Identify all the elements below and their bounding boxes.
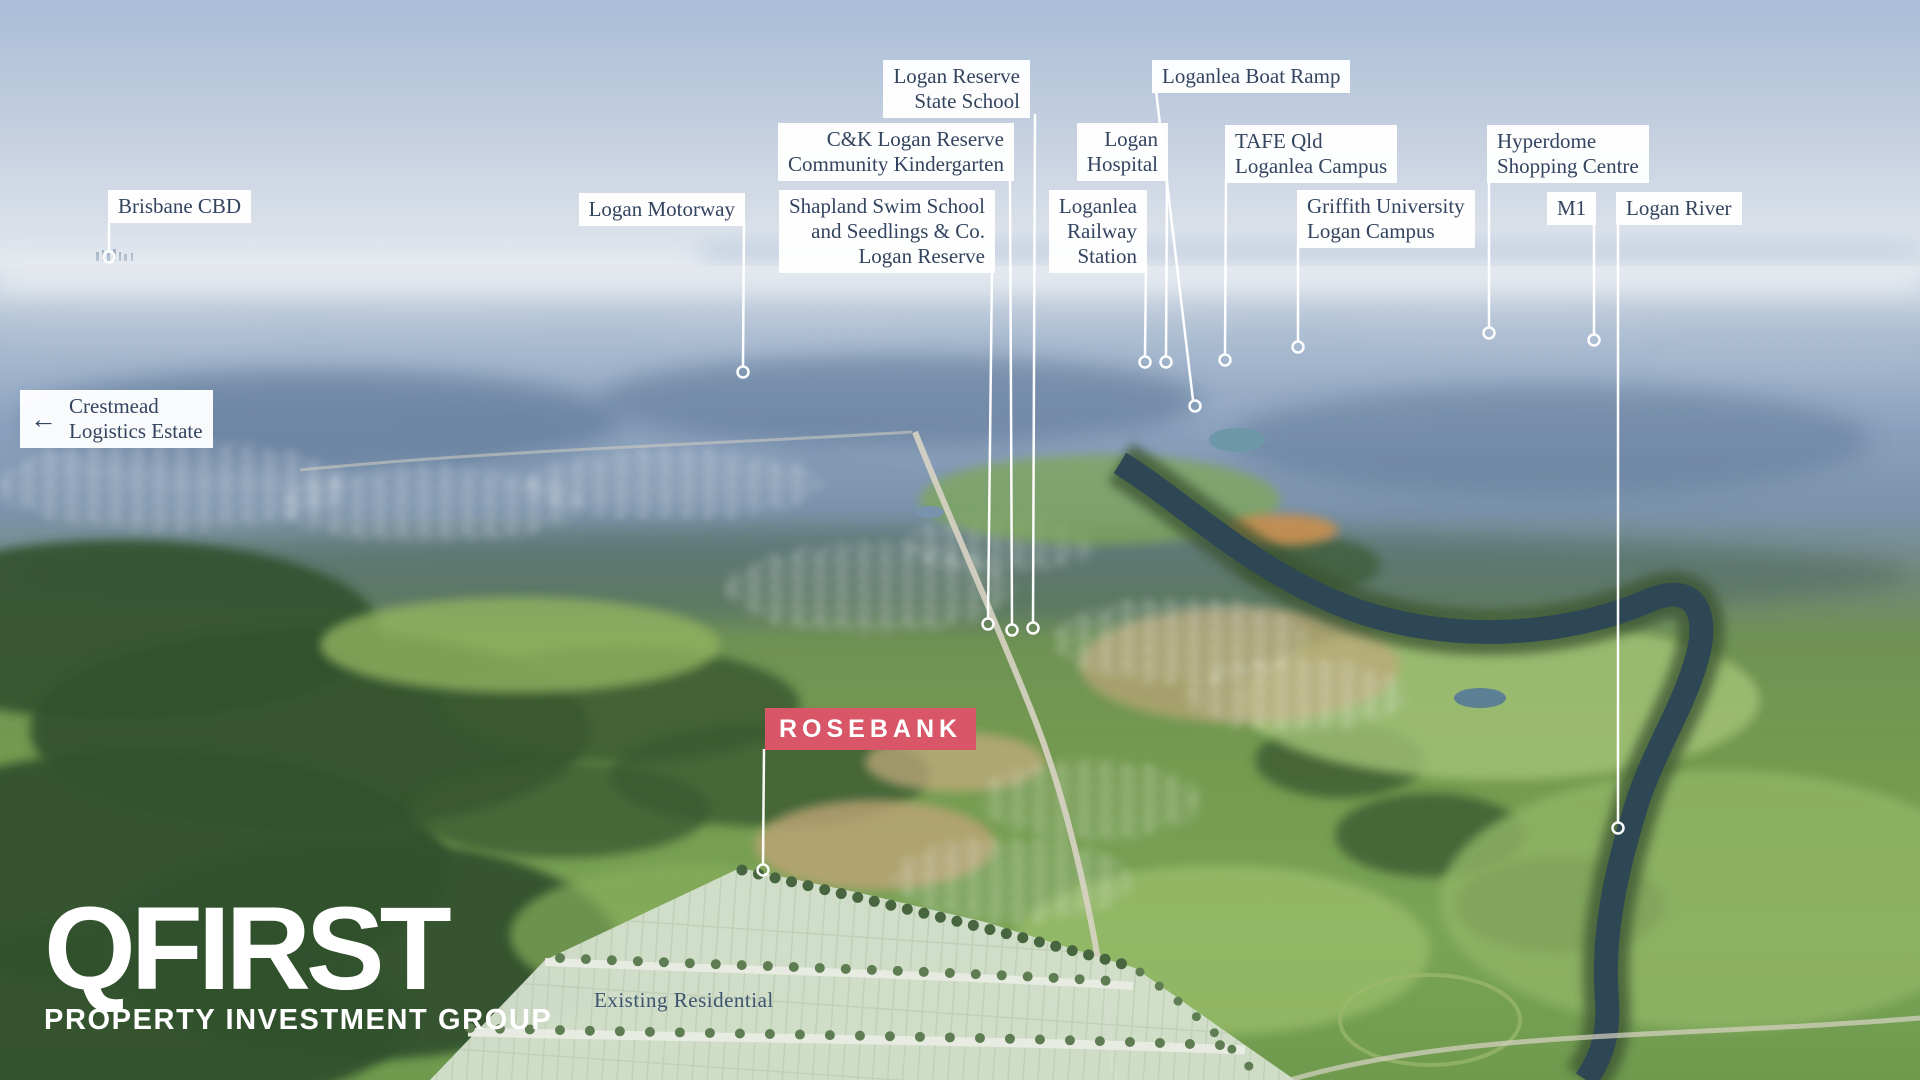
callout-line: Brisbane CBD: [118, 194, 241, 219]
rosebank-label: ROSEBANK: [779, 715, 962, 744]
callout-line: Shapland Swim School: [789, 194, 985, 219]
qfirst-logo-tagline: PROPERTY INVESTMENT GROUP: [44, 1004, 552, 1036]
leader-m1: [1589, 222, 1600, 346]
callout-line: Shopping Centre: [1497, 154, 1639, 179]
callout-m1: M1: [1547, 192, 1596, 225]
aerial-masterplan-page: Brisbane CBD ← Crestmead Logistics Estat…: [0, 0, 1920, 1080]
callout-line: Logan: [1087, 127, 1158, 152]
leader-tafe: [1220, 179, 1231, 366]
callout-lines: Crestmead Logistics Estate: [69, 394, 203, 444]
callout-griffith-university-logan-campus: Griffith University Logan Campus: [1297, 190, 1475, 248]
leader-logan-reserve-state-school: [1028, 114, 1039, 634]
callout-logan-motorway: Logan Motorway: [579, 193, 745, 226]
callout-line: Railway: [1059, 219, 1137, 244]
callout-line: Loganlea: [1059, 194, 1137, 219]
leader-shapland: [983, 269, 994, 630]
callout-line: Logan Reserve: [789, 244, 985, 269]
leader-hyperdome: [1484, 179, 1495, 339]
callout-line: Loganlea Boat Ramp: [1162, 64, 1340, 89]
callout-line: Logan Motorway: [589, 197, 735, 222]
leader-loganlea-railway: [1140, 264, 1151, 368]
leader-logan-river: [1613, 222, 1624, 834]
callout-line: Logan River: [1626, 196, 1732, 221]
callout-hyperdome-shopping-centre: Hyperdome Shopping Centre: [1487, 125, 1649, 183]
callout-brisbane-cbd: Brisbane CBD: [108, 190, 251, 223]
callout-logan-river: Logan River: [1616, 192, 1742, 225]
callout-line: State School: [893, 89, 1020, 114]
callout-line: Crestmead: [69, 394, 203, 419]
qfirst-logo-wordmark: QFIRST: [44, 896, 552, 1002]
leader-griffith: [1293, 244, 1304, 353]
leader-ck-kindergarten: [1007, 179, 1018, 636]
callout-line: Hyperdome: [1497, 129, 1639, 154]
callout-line: Community Kindergarten: [788, 152, 1004, 177]
callout-line: Griffith University: [1307, 194, 1465, 219]
callout-crestmead-logistics-estate: ← Crestmead Logistics Estate: [20, 390, 213, 448]
callout-line: C&K Logan Reserve: [788, 127, 1004, 152]
callout-loganlea-boat-ramp: Loganlea Boat Ramp: [1152, 60, 1350, 93]
leader-logan-motorway: [738, 221, 749, 378]
qfirst-logo: QFIRST PROPERTY INVESTMENT GROUP: [44, 896, 552, 1036]
callout-line: Station: [1059, 244, 1137, 269]
callout-line: and Seedlings & Co.: [789, 219, 985, 244]
callout-ck-logan-reserve-kindergarten: C&K Logan Reserve Community Kindergarten: [778, 123, 1014, 181]
callout-shapland-swim-school: Shapland Swim School and Seedlings & Co.…: [779, 190, 995, 273]
callout-line: Logan Campus: [1307, 219, 1465, 244]
callout-line: Loganlea Campus: [1235, 154, 1387, 179]
left-arrow-icon: ←: [30, 406, 57, 433]
existing-residential-label: Existing Residential: [594, 988, 774, 1013]
callout-line: M1: [1557, 196, 1586, 221]
callout-line: Logistics Estate: [69, 419, 203, 444]
callout-line: Logan Reserve: [893, 64, 1020, 89]
callout-logan-hospital: Logan Hospital: [1077, 123, 1168, 181]
leader-rosebank: [758, 749, 769, 876]
callout-loganlea-railway-station: Loganlea Railway Station: [1049, 190, 1147, 273]
callout-line: TAFE Qld: [1235, 129, 1387, 154]
callout-logan-reserve-state-school: Logan Reserve State School: [883, 60, 1030, 118]
rosebank-project-badge: ROSEBANK: [765, 708, 976, 750]
callout-tafe-qld-loganlea-campus: TAFE Qld Loganlea Campus: [1225, 125, 1397, 183]
callout-line: Hospital: [1087, 152, 1158, 177]
leader-brisbane-cbd: [104, 223, 115, 263]
